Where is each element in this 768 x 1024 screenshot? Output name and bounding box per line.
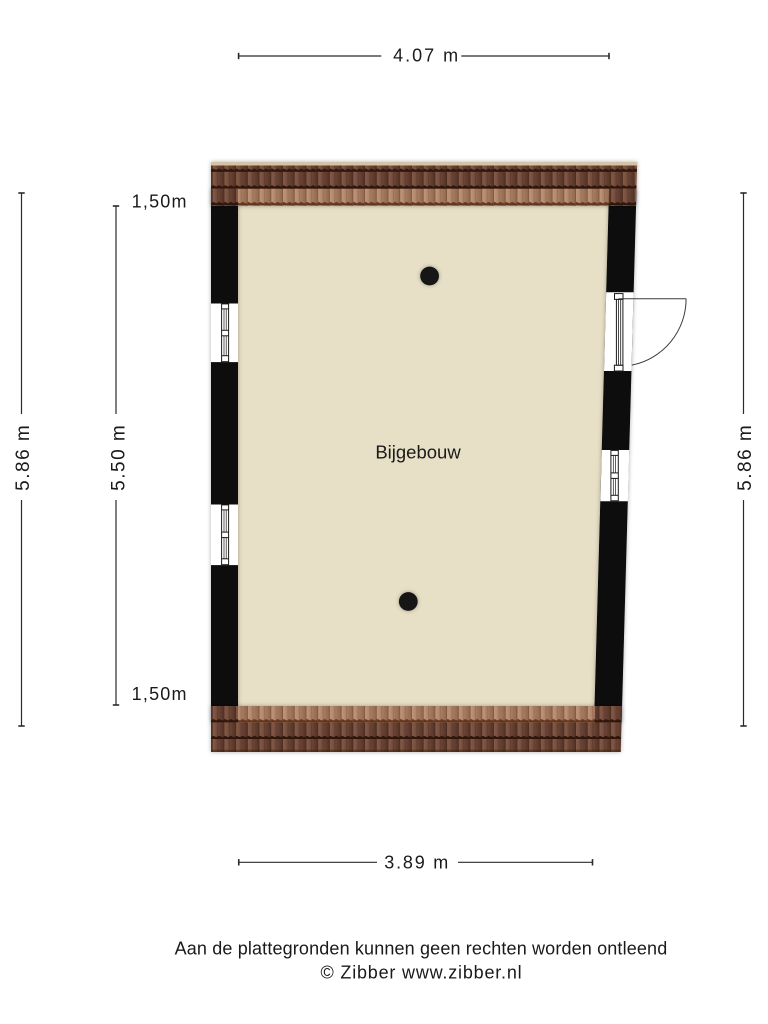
svg-text:1,50m: 1,50m: [132, 684, 188, 704]
svg-text:1,50m: 1,50m: [132, 191, 188, 211]
svg-text:5.50 m: 5.50 m: [109, 424, 130, 491]
svg-text:5.86 m: 5.86 m: [735, 424, 756, 491]
svg-text:© Zibber www.zibber.nl: © Zibber www.zibber.nl: [321, 963, 523, 983]
svg-text:4.07 m: 4.07 m: [393, 46, 460, 66]
svg-text:3.89 m: 3.89 m: [384, 852, 450, 872]
svg-text:5.86 m: 5.86 m: [13, 424, 34, 491]
svg-text:Bijgebouw: Bijgebouw: [375, 442, 461, 463]
svg-text:Aan de plattegronden kunnen ge: Aan de plattegronden kunnen geen rechten…: [175, 939, 668, 959]
